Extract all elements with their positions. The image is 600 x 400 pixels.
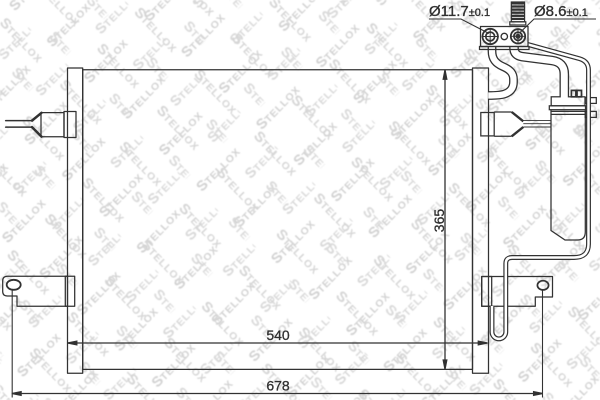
svg-text:678: 678: [266, 378, 290, 394]
svg-text:540: 540: [266, 327, 290, 343]
svg-text:365: 365: [431, 209, 447, 233]
